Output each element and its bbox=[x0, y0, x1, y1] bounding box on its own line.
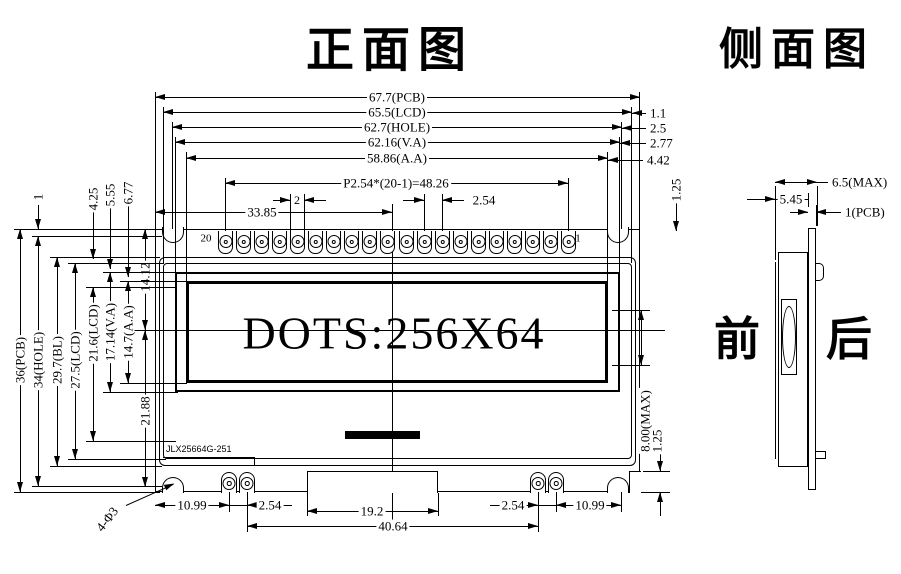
pin-pad bbox=[507, 231, 522, 254]
dim-arrow-icon bbox=[142, 330, 148, 340]
dim-arrow-icon bbox=[72, 263, 78, 273]
dim-arrow-icon bbox=[556, 502, 566, 508]
connector-bar bbox=[345, 431, 420, 439]
pin-hole bbox=[223, 240, 228, 245]
pin-pad bbox=[272, 231, 287, 254]
dim-arrow-icon bbox=[816, 209, 826, 215]
ext-line bbox=[229, 492, 230, 512]
dim-arrow-icon bbox=[558, 180, 568, 186]
pin-hole bbox=[259, 240, 264, 245]
dim-lip: 1.25 bbox=[651, 428, 664, 455]
ext-line bbox=[643, 471, 670, 472]
ext-line bbox=[817, 186, 818, 226]
ext-line bbox=[639, 92, 640, 229]
side-bottom-tab bbox=[815, 451, 826, 459]
dim-arrow-icon bbox=[304, 197, 314, 203]
ext-line bbox=[86, 441, 176, 442]
ext-line bbox=[14, 229, 155, 230]
backlight-pin-pad bbox=[239, 472, 255, 493]
dim-arrow-icon bbox=[638, 355, 644, 365]
dim-arrow-icon bbox=[765, 196, 775, 202]
pin-pad bbox=[308, 231, 323, 254]
dim-edge-aa: 4.42 bbox=[645, 154, 672, 167]
dim-off3: 6.77 bbox=[122, 180, 135, 207]
pin-pad bbox=[471, 231, 486, 254]
dim-arrow-icon bbox=[414, 197, 424, 203]
dim-lcd-height: 27.5(LCD) bbox=[69, 329, 82, 390]
pin-hole bbox=[536, 481, 541, 486]
step-line bbox=[254, 457, 255, 466]
dim-arrow-icon bbox=[247, 502, 257, 508]
pin-hole bbox=[385, 240, 390, 245]
ext-line bbox=[612, 365, 650, 366]
drawing-canvas: 正面图 侧面图 DOTS:256X64 20 1 JLX25664G-251 bbox=[0, 0, 901, 574]
dim-pin-row: P2.54*(20-1)=48.26 bbox=[341, 177, 451, 190]
dim-aa-width: 58.86(A.A) bbox=[365, 152, 429, 165]
dim-arrow-icon bbox=[657, 461, 663, 471]
dim-off1: 4.25 bbox=[87, 186, 100, 213]
dim-arrow-icon bbox=[90, 431, 96, 441]
dim-arrow-icon bbox=[608, 157, 618, 163]
dim-arrow-icon bbox=[35, 236, 41, 246]
dim-arrow-icon bbox=[17, 229, 23, 239]
dim-side-total: 6.5(MAX) bbox=[830, 176, 889, 189]
dim-arrow-icon bbox=[125, 373, 131, 383]
ext-line bbox=[68, 459, 166, 460]
pin-number-1: 1 bbox=[573, 234, 583, 245]
pin-hole bbox=[331, 240, 336, 245]
dim-arrow-icon bbox=[107, 259, 113, 269]
dim-arrow-icon bbox=[155, 502, 165, 508]
pin-hole bbox=[422, 240, 427, 245]
dim-arrow-icon bbox=[17, 482, 23, 492]
ext-line bbox=[163, 107, 164, 263]
dim-lcd-width: 65.5(LCD) bbox=[366, 106, 427, 119]
dim-bl-pitch-right: 2.54 bbox=[500, 499, 527, 512]
dim-hole-width: 62.7(HOLE) bbox=[362, 121, 432, 134]
dim-pin-width: 2 bbox=[292, 194, 302, 206]
ext-line bbox=[103, 392, 178, 393]
dim-arrow-icon bbox=[673, 221, 679, 231]
dim-arrow-icon bbox=[382, 209, 392, 215]
ext-line bbox=[631, 107, 632, 263]
dim-side-pcb: 1(PCB) bbox=[843, 206, 887, 219]
dim-arrow-icon bbox=[35, 219, 41, 229]
ext-line bbox=[175, 137, 176, 275]
ext-line bbox=[290, 194, 291, 231]
dim-arrow-icon bbox=[280, 197, 290, 203]
pin-hole bbox=[512, 240, 517, 245]
pin-hole bbox=[554, 481, 559, 486]
display-dots-text: DOTS:256X64 bbox=[242, 307, 545, 360]
ext-line bbox=[86, 287, 176, 288]
ext-line bbox=[225, 178, 226, 231]
backlight-pin-pad bbox=[221, 472, 237, 493]
dim-arrow-icon bbox=[90, 287, 96, 297]
ext-line bbox=[775, 186, 776, 260]
bottom-edge-recess bbox=[307, 471, 438, 493]
pin-hole bbox=[245, 481, 250, 486]
dim-arrow-icon bbox=[528, 502, 538, 508]
ext-line bbox=[186, 152, 187, 284]
dim-mid2: 21.88 bbox=[139, 394, 152, 427]
dim-arrow-icon bbox=[442, 197, 452, 203]
pin-hole bbox=[241, 240, 246, 245]
dim-arrow-icon bbox=[142, 320, 148, 330]
ext-line bbox=[607, 152, 608, 284]
side-top-tab bbox=[815, 263, 824, 281]
ext-line bbox=[304, 194, 305, 231]
dim-arrow-icon bbox=[307, 508, 317, 514]
pin-hole bbox=[548, 240, 553, 245]
dim-va-width: 62.16(V.A) bbox=[366, 136, 428, 149]
dim-arrow-icon bbox=[638, 310, 644, 320]
dim-hole-height: 34(HOLE) bbox=[32, 330, 45, 390]
ext-line bbox=[50, 257, 160, 258]
ext-line bbox=[442, 194, 443, 231]
dim-aa-height: 14.7(A.A) bbox=[122, 303, 135, 360]
dim-arrow-icon bbox=[125, 281, 131, 291]
pin-pad bbox=[362, 231, 377, 254]
dim-bl-pin-right: 10.99 bbox=[573, 499, 606, 512]
pin-pad bbox=[417, 231, 432, 254]
dim-edge-lcd: 1.1 bbox=[648, 107, 668, 120]
ext-line bbox=[538, 492, 539, 532]
front-view-title: 正面图 bbox=[306, 10, 474, 80]
ext-line bbox=[808, 193, 809, 207]
dim-arrow-icon bbox=[428, 508, 438, 514]
dim-pin-inset: 1.25 bbox=[670, 177, 683, 204]
dim-arrow-icon bbox=[172, 124, 182, 130]
pin-hole bbox=[313, 240, 318, 245]
step-line bbox=[163, 457, 254, 458]
mount-hole-notch bbox=[607, 477, 629, 493]
pin-hole bbox=[476, 240, 481, 245]
dim-va-height: 17.14(V.A) bbox=[104, 301, 117, 363]
dim-arrow-icon bbox=[175, 139, 185, 145]
pin-hole bbox=[494, 240, 499, 245]
dim-bl-pitch-left: 2.54 bbox=[257, 499, 284, 512]
pin-pad bbox=[344, 231, 359, 254]
ext-line bbox=[568, 178, 569, 231]
dim-arrow-icon bbox=[528, 523, 538, 529]
backlight-pin-pad bbox=[548, 472, 564, 493]
ext-line bbox=[621, 122, 622, 229]
pin-pad bbox=[326, 231, 341, 254]
dim-pcb-height: 36(PCB) bbox=[14, 335, 27, 385]
dim-side-module: 5.45 bbox=[778, 193, 805, 206]
dim-arrow-icon bbox=[611, 502, 621, 508]
ext-line bbox=[14, 492, 160, 493]
backlight-pin-pad bbox=[530, 472, 546, 493]
pin-pad bbox=[453, 231, 468, 254]
dim-arrow-icon bbox=[54, 257, 60, 267]
dim-edge-hole: 2.5 bbox=[648, 122, 668, 135]
pin-pad bbox=[543, 231, 558, 254]
dim-off2: 5.55 bbox=[104, 182, 117, 209]
dim-arrow-icon bbox=[807, 179, 817, 185]
dim-arrow-icon bbox=[155, 94, 165, 100]
dim-arrow-icon bbox=[72, 449, 78, 459]
dim-edge-va: 2.77 bbox=[648, 137, 675, 150]
pin-hole bbox=[566, 240, 571, 245]
pin-pad bbox=[489, 231, 504, 254]
dim-pin-pitch: 2.54 bbox=[471, 194, 498, 207]
dim-arrow-icon bbox=[775, 179, 785, 185]
dim-line bbox=[128, 201, 129, 277]
pin-hole bbox=[440, 240, 445, 245]
pin-hole bbox=[367, 240, 372, 245]
dim-mid1: 14.12 bbox=[139, 260, 152, 293]
pin-pad bbox=[218, 231, 233, 254]
ext-line bbox=[172, 122, 173, 229]
ext-line bbox=[32, 236, 162, 237]
dim-arrow-icon bbox=[225, 180, 235, 186]
dim-arrow-icon bbox=[107, 382, 113, 392]
dim-arrow-icon bbox=[219, 502, 229, 508]
pin-pad bbox=[254, 231, 269, 254]
ext-line bbox=[120, 281, 187, 282]
side-back-label: 后 bbox=[826, 303, 872, 369]
ext-line bbox=[641, 492, 670, 493]
dim-arrow-icon bbox=[798, 209, 808, 215]
ext-line bbox=[50, 466, 162, 467]
pin-hole bbox=[530, 240, 535, 245]
dim-arrow-icon bbox=[186, 155, 196, 161]
pin-pad bbox=[399, 231, 414, 254]
ext-line bbox=[68, 263, 164, 264]
pin-pad bbox=[525, 231, 540, 254]
pin-pad bbox=[290, 231, 305, 254]
ext-line bbox=[438, 493, 439, 516]
pin-pad bbox=[236, 231, 251, 254]
dim-bl-pin-left: 10.99 bbox=[175, 499, 208, 512]
dim-arrow-icon bbox=[657, 492, 663, 502]
ext-line bbox=[619, 137, 620, 275]
leader-line bbox=[126, 484, 174, 506]
dim-arrow-icon bbox=[54, 456, 60, 466]
dim-bl-span: 40.64 bbox=[376, 520, 409, 533]
dim-arrow-icon bbox=[107, 272, 113, 282]
board-model-label: JLX25664G-251 bbox=[166, 445, 232, 455]
dim-pcb-width: 67.7(PCB) bbox=[367, 91, 427, 104]
dim-mount-holes: 4-Φ3 bbox=[92, 503, 121, 535]
dim-bl-height: 29.7(BL) bbox=[51, 334, 64, 386]
pin-hole bbox=[349, 240, 354, 245]
dim-arrow-icon bbox=[163, 109, 173, 115]
ext-line bbox=[120, 383, 187, 384]
pin-hole bbox=[227, 481, 232, 486]
side-front-label: 前 bbox=[714, 303, 760, 369]
pin-hole bbox=[277, 240, 282, 245]
dim-arrow-icon bbox=[632, 110, 642, 116]
ext-line bbox=[612, 310, 650, 311]
side-view-title: 侧面图 bbox=[719, 13, 875, 77]
side-lens-ellipse bbox=[782, 306, 796, 368]
dim-arrow-icon bbox=[35, 476, 41, 486]
ext-line bbox=[621, 492, 622, 512]
pin-hole bbox=[458, 240, 463, 245]
dim-notch-width: 19.2 bbox=[359, 505, 386, 518]
pin-hole bbox=[295, 240, 300, 245]
pin-pad bbox=[435, 231, 450, 254]
dim-lcd-height2: 21.6(LCD) bbox=[87, 302, 100, 363]
dim-arrow-icon bbox=[142, 229, 148, 239]
side-front-face-line bbox=[775, 262, 776, 459]
dim-half-width: 33.85 bbox=[245, 206, 278, 219]
ext-line bbox=[424, 194, 425, 231]
pin-hole bbox=[404, 240, 409, 245]
bottom-right-step bbox=[629, 471, 641, 493]
ext-line bbox=[32, 486, 162, 487]
ext-line bbox=[155, 92, 156, 229]
pin-number-20: 20 bbox=[199, 234, 214, 245]
ext-line bbox=[103, 272, 176, 273]
dim-arrow-icon bbox=[247, 523, 257, 529]
dim-top-edge: 1 bbox=[32, 192, 45, 203]
pin-pad bbox=[380, 231, 395, 254]
